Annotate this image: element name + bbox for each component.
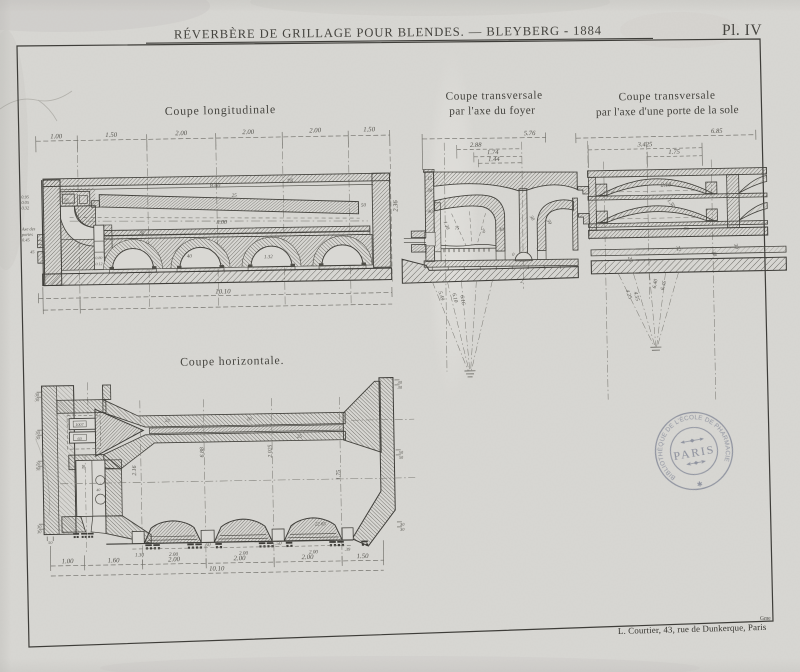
svg-text:10: 10 — [247, 417, 252, 422]
svg-text:1.50: 1.50 — [105, 132, 118, 139]
svg-text:2.00: 2.00 — [234, 555, 247, 562]
svg-text:.39: .39 — [345, 547, 352, 552]
svg-text:10.10: 10.10 — [215, 288, 231, 295]
svg-text:2.88: 2.88 — [470, 142, 482, 149]
svg-text:1007: 1007 — [75, 422, 84, 427]
svg-text:2.00: 2.00 — [175, 130, 188, 137]
svg-text:par l'axe du foyer: par l'axe du foyer — [449, 105, 535, 118]
svg-text:0.80: 0.80 — [95, 255, 102, 260]
svg-text:30: 30 — [499, 227, 505, 233]
svg-text:0.95: 0.95 — [21, 194, 30, 199]
svg-text:1.60: 1.60 — [108, 557, 121, 564]
svg-text:6.85: 6.85 — [711, 128, 723, 135]
svg-text:1.32: 1.32 — [264, 255, 273, 260]
svg-text:30: 30 — [427, 189, 433, 194]
svg-text:0.45: 0.45 — [22, 237, 31, 242]
svg-text:75: 75 — [455, 226, 460, 231]
svg-text:40: 40 — [96, 487, 100, 492]
svg-text:1.75: 1.75 — [668, 149, 680, 156]
svg-text:Coupe transversale: Coupe transversale — [618, 89, 715, 103]
svg-text:1.30: 1.30 — [135, 552, 145, 558]
svg-text:6.88: 6.88 — [200, 447, 206, 457]
svg-text:10.10: 10.10 — [209, 565, 225, 572]
svg-text:1.00: 1.00 — [50, 133, 63, 140]
svg-text:1.44: 1.44 — [488, 156, 500, 163]
svg-text:2.025: 2.025 — [268, 444, 274, 457]
svg-text:8.40: 8.40 — [210, 182, 221, 189]
svg-text:2.18: 2.18 — [661, 182, 672, 188]
svg-text:75: 75 — [287, 179, 293, 185]
svg-text:0.32: 0.32 — [21, 205, 30, 210]
svg-text:Axe des: Axe des — [21, 226, 36, 231]
svg-text:Coupe transversale: Coupe transversale — [446, 89, 543, 102]
svg-text:1.50: 1.50 — [363, 126, 376, 133]
svg-text:1.50: 1.50 — [357, 553, 370, 560]
svg-text:22.65: 22.65 — [315, 522, 326, 527]
svg-text:5.76: 5.76 — [524, 130, 536, 137]
svg-text:2.00: 2.00 — [168, 556, 181, 563]
svg-text:1.00: 1.00 — [62, 558, 75, 565]
svg-text:2.00: 2.00 — [302, 554, 315, 561]
svg-text:3.425: 3.425 — [637, 141, 654, 148]
svg-text:Coupe horizontale.: Coupe horizontale. — [180, 353, 284, 369]
svg-text:Coupe longitudinale: Coupe longitudinale — [165, 102, 276, 118]
svg-text:1.75: 1.75 — [336, 470, 342, 480]
svg-text:2.36: 2.36 — [392, 199, 399, 211]
svg-text:90: 90 — [684, 227, 689, 232]
svg-text:.50: .50 — [275, 541, 282, 547]
svg-text:0.12: 0.12 — [95, 261, 102, 266]
svg-text:8.00: 8.00 — [216, 220, 227, 226]
svg-text:2.00: 2.00 — [309, 127, 322, 134]
svg-text:Pl. IV: Pl. IV — [722, 22, 762, 39]
svg-text:40: 40 — [187, 255, 193, 260]
svg-text:portes: portes — [21, 232, 33, 237]
svg-text:40: 40 — [428, 210, 434, 215]
svg-text:25: 25 — [232, 194, 238, 199]
svg-text:50: 50 — [361, 203, 367, 208]
svg-text:0.05: 0.05 — [21, 200, 30, 205]
svg-text:.50: .50 — [204, 542, 211, 548]
svg-text:Gme: Gme — [760, 616, 771, 622]
svg-text:1: 1 — [536, 246, 539, 251]
svg-text:15: 15 — [427, 177, 433, 182]
svg-text:2.16: 2.16 — [132, 465, 138, 475]
svg-text:30: 30 — [139, 231, 145, 236]
svg-text:2.00: 2.00 — [242, 129, 255, 136]
svg-text:25: 25 — [297, 435, 302, 440]
